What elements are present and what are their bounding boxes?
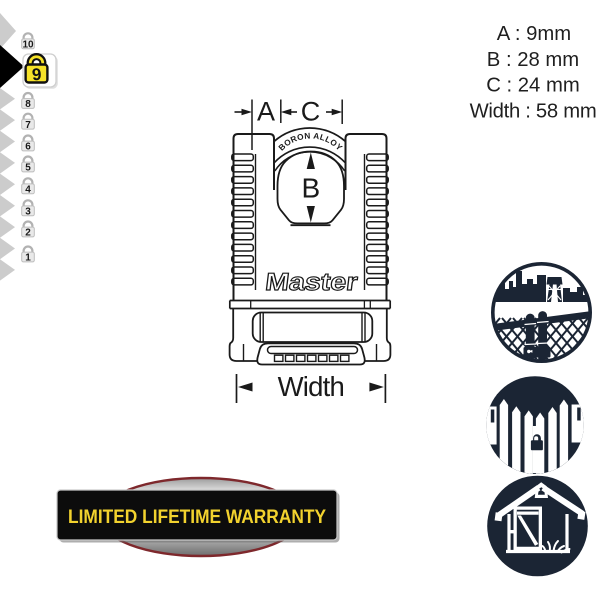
svg-text:A: A: [257, 97, 275, 127]
svg-text:1: 1: [25, 253, 31, 264]
svg-text:Width: Width: [278, 371, 344, 402]
svg-text:B: B: [301, 173, 320, 204]
svg-text:9: 9: [31, 65, 42, 85]
svg-text:6: 6: [25, 142, 31, 153]
svg-text:C : 24 mm: C : 24 mm: [486, 75, 580, 97]
svg-text:2: 2: [25, 228, 31, 239]
svg-text:4: 4: [25, 184, 31, 195]
svg-text:8: 8: [25, 99, 31, 110]
svg-text:A : 9mm: A : 9mm: [497, 23, 571, 45]
svg-text:C: C: [301, 97, 321, 127]
svg-text:LIMITED LIFETIME WARRANTY: LIMITED LIFETIME WARRANTY: [68, 506, 326, 528]
svg-text:10: 10: [22, 39, 34, 50]
svg-text:5: 5: [25, 163, 31, 174]
svg-text:7: 7: [25, 120, 31, 131]
svg-text:B : 28 mm: B : 28 mm: [487, 49, 579, 71]
svg-text:Width : 58 mm: Width : 58 mm: [470, 101, 597, 123]
svg-text:Master: Master: [264, 269, 360, 296]
svg-text:3: 3: [25, 206, 31, 217]
